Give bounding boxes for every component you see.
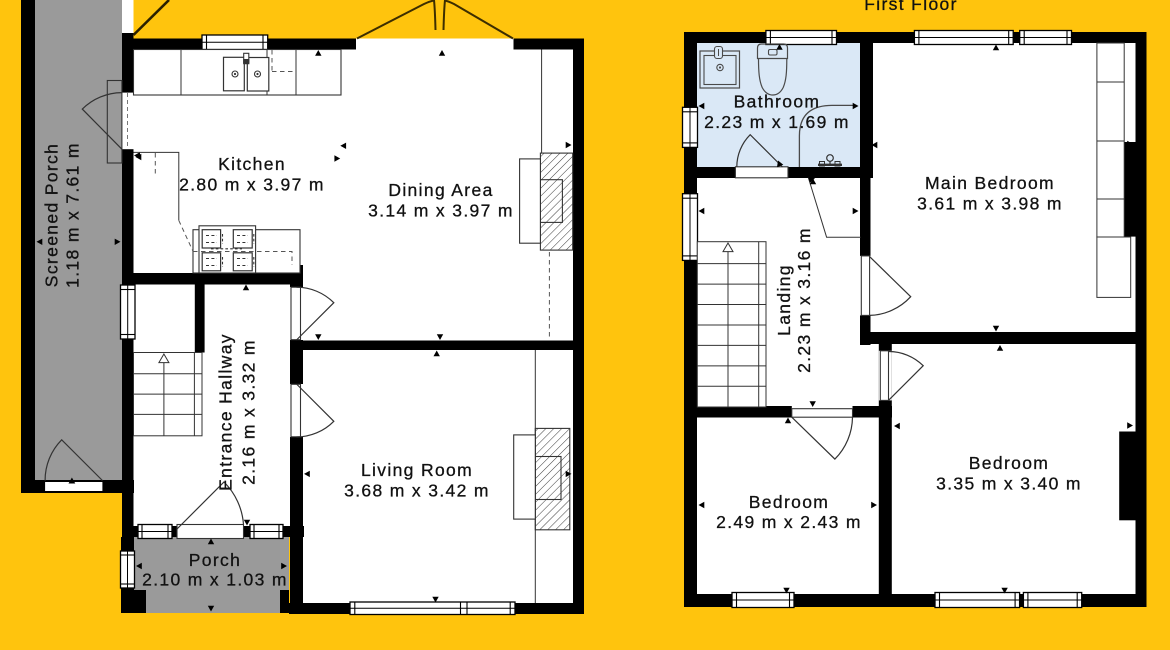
svg-text:2.16 m x 3.32 m: 2.16 m x 3.32 m	[239, 339, 259, 485]
svg-text:Entrance Hallway: Entrance Hallway	[216, 333, 236, 491]
svg-text:2.49 m x 2.43 m: 2.49 m x 2.43 m	[716, 512, 862, 532]
svg-text:1.18 m x 7.61 m: 1.18 m x 7.61 m	[63, 142, 83, 288]
svg-text:Main Bedroom: Main Bedroom	[925, 173, 1055, 193]
svg-text:3.14 m x 3.97 m: 3.14 m x 3.97 m	[368, 201, 514, 221]
svg-text:Kitchen: Kitchen	[218, 154, 286, 174]
svg-text:Bedroom: Bedroom	[969, 453, 1049, 473]
svg-text:Living Room: Living Room	[361, 460, 473, 480]
svg-text:Bathroom: Bathroom	[734, 92, 821, 112]
svg-text:Porch: Porch	[189, 550, 241, 570]
svg-text:First Floor: First Floor	[864, 0, 958, 14]
svg-text:Landing: Landing	[774, 264, 794, 336]
svg-text:3.61 m x 3.98 m: 3.61 m x 3.98 m	[917, 194, 1063, 214]
svg-text:2.23 m x 1.69 m: 2.23 m x 1.69 m	[704, 112, 850, 132]
svg-text:Screened Porch: Screened Porch	[42, 143, 62, 287]
svg-text:3.68 m x 3.42 m: 3.68 m x 3.42 m	[344, 481, 490, 501]
svg-text:Dining Area: Dining Area	[388, 180, 493, 200]
svg-text:2.80 m x 3.97 m: 2.80 m x 3.97 m	[179, 175, 325, 195]
svg-text:2.23 m x 3.16 m: 2.23 m x 3.16 m	[794, 227, 814, 373]
svg-text:3.35 m x 3.40 m: 3.35 m x 3.40 m	[936, 474, 1082, 494]
svg-text:Bedroom: Bedroom	[749, 492, 829, 512]
svg-text:2.10 m x 1.03 m: 2.10 m x 1.03 m	[142, 570, 288, 590]
